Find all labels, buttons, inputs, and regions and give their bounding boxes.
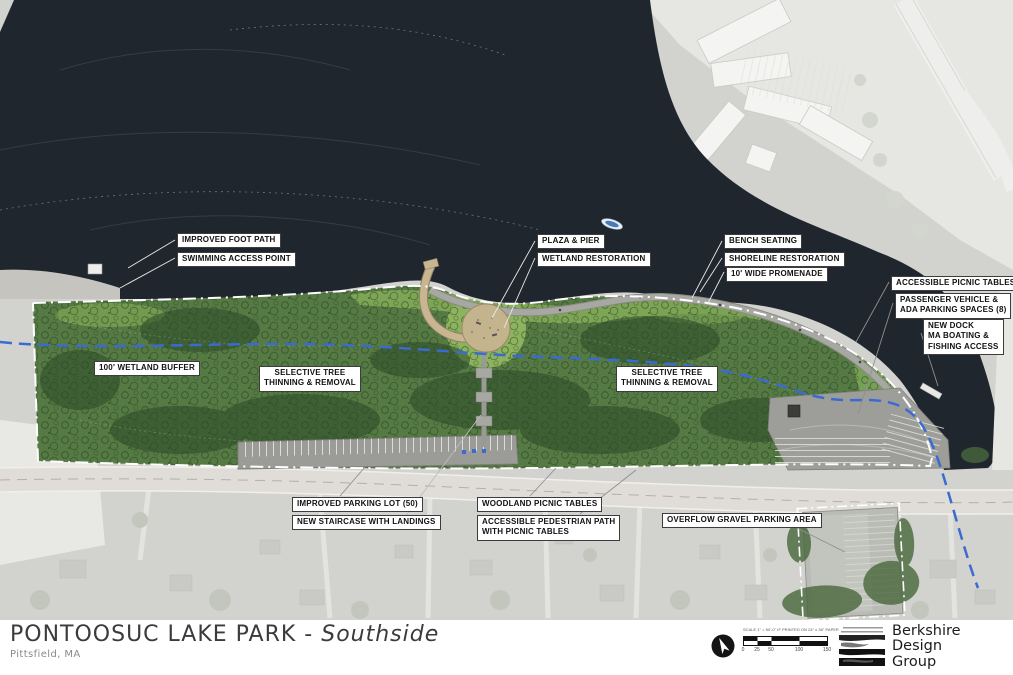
firm-logo: Berkshire Design Group: [839, 624, 961, 670]
scale-tick: 0: [742, 647, 745, 653]
page-title: PONTOOSUC LAKE PARK - Southside: [10, 622, 439, 647]
map-label-improved-foot-path: IMPROVED FOOT PATH: [177, 233, 281, 248]
plan-sheet: IMPROVED FOOT PATHSWIMMING ACCESS POINTP…: [0, 0, 1013, 675]
scale-bar-graphic: [743, 636, 829, 646]
scale-tick: 50: [768, 647, 774, 653]
annotation-labels: IMPROVED FOOT PATHSWIMMING ACCESS POINTP…: [0, 0, 1013, 620]
scale-tick: 100: [795, 647, 803, 653]
map-label-swimming-access-point: SWIMMING ACCESS POINT: [177, 252, 296, 267]
map-label-selective-tree-east: SELECTIVE TREETHINNING & REMOVAL: [616, 366, 718, 392]
scale-ticks: 0 25 50 100 150: [743, 647, 843, 655]
title-separator: -: [296, 622, 321, 647]
map-label-wetland-restoration: WETLAND RESTORATION: [537, 252, 651, 267]
scale-tick: 150: [823, 647, 831, 653]
map-label-accessible-pedestrian-path: ACCESSIBLE PEDESTRIAN PATHWITH PICNIC TA…: [477, 515, 620, 541]
firm-name: Berkshire Design Group: [892, 624, 961, 669]
map-label-shoreline-restoration: SHORELINE RESTORATION: [724, 252, 845, 267]
map-label-passenger-vehicle-ada: PASSENGER VEHICLE &ADA PARKING SPACES (8…: [895, 293, 1011, 319]
sheet-location: Pittsfield, MA: [10, 649, 439, 660]
scale-bar: SCALE 1" = 50'-0" IF PRINTED ON 24" x 36…: [743, 628, 843, 668]
map-label-plaza-pier: PLAZA & PIER: [537, 234, 605, 249]
map-label-selective-tree-west: SELECTIVE TREETHINNING & REMOVAL: [259, 366, 361, 392]
scale-caption: SCALE 1" = 50'-0" IF PRINTED ON 24" x 36…: [743, 628, 821, 633]
scale-tick: 25: [754, 647, 760, 653]
title-block: PONTOOSUC LAKE PARK - Southside Pittsfie…: [0, 620, 1013, 675]
map-label-new-dock: NEW DOCKMA BOATING &FISHING ACCESS: [923, 319, 1004, 355]
map-label-bench-seating: BENCH SEATING: [724, 234, 802, 249]
site-plan-map: IMPROVED FOOT PATHSWIMMING ACCESS POINTP…: [0, 0, 1013, 620]
firm-logo-icon: [839, 624, 885, 670]
map-label-improved-parking-lot: IMPROVED PARKING LOT (50): [292, 497, 423, 512]
map-label-wetland-buffer: 100' WETLAND BUFFER: [94, 361, 200, 376]
north-arrow-icon: [709, 632, 737, 660]
map-label-wide-promenade: 10' WIDE PROMENADE: [726, 267, 828, 282]
map-label-overflow-gravel-parking: OVERFLOW GRAVEL PARKING AREA: [662, 513, 822, 528]
park-name: PONTOOSUC LAKE PARK: [10, 622, 296, 647]
title-subtitle: Southside: [321, 622, 439, 647]
map-label-woodland-picnic-tables: WOODLAND PICNIC TABLES: [477, 497, 602, 512]
map-label-accessible-picnic-tables: ACCESSIBLE PICNIC TABLES: [891, 276, 1013, 291]
map-label-new-staircase: NEW STAIRCASE WITH LANDINGS: [292, 515, 441, 530]
